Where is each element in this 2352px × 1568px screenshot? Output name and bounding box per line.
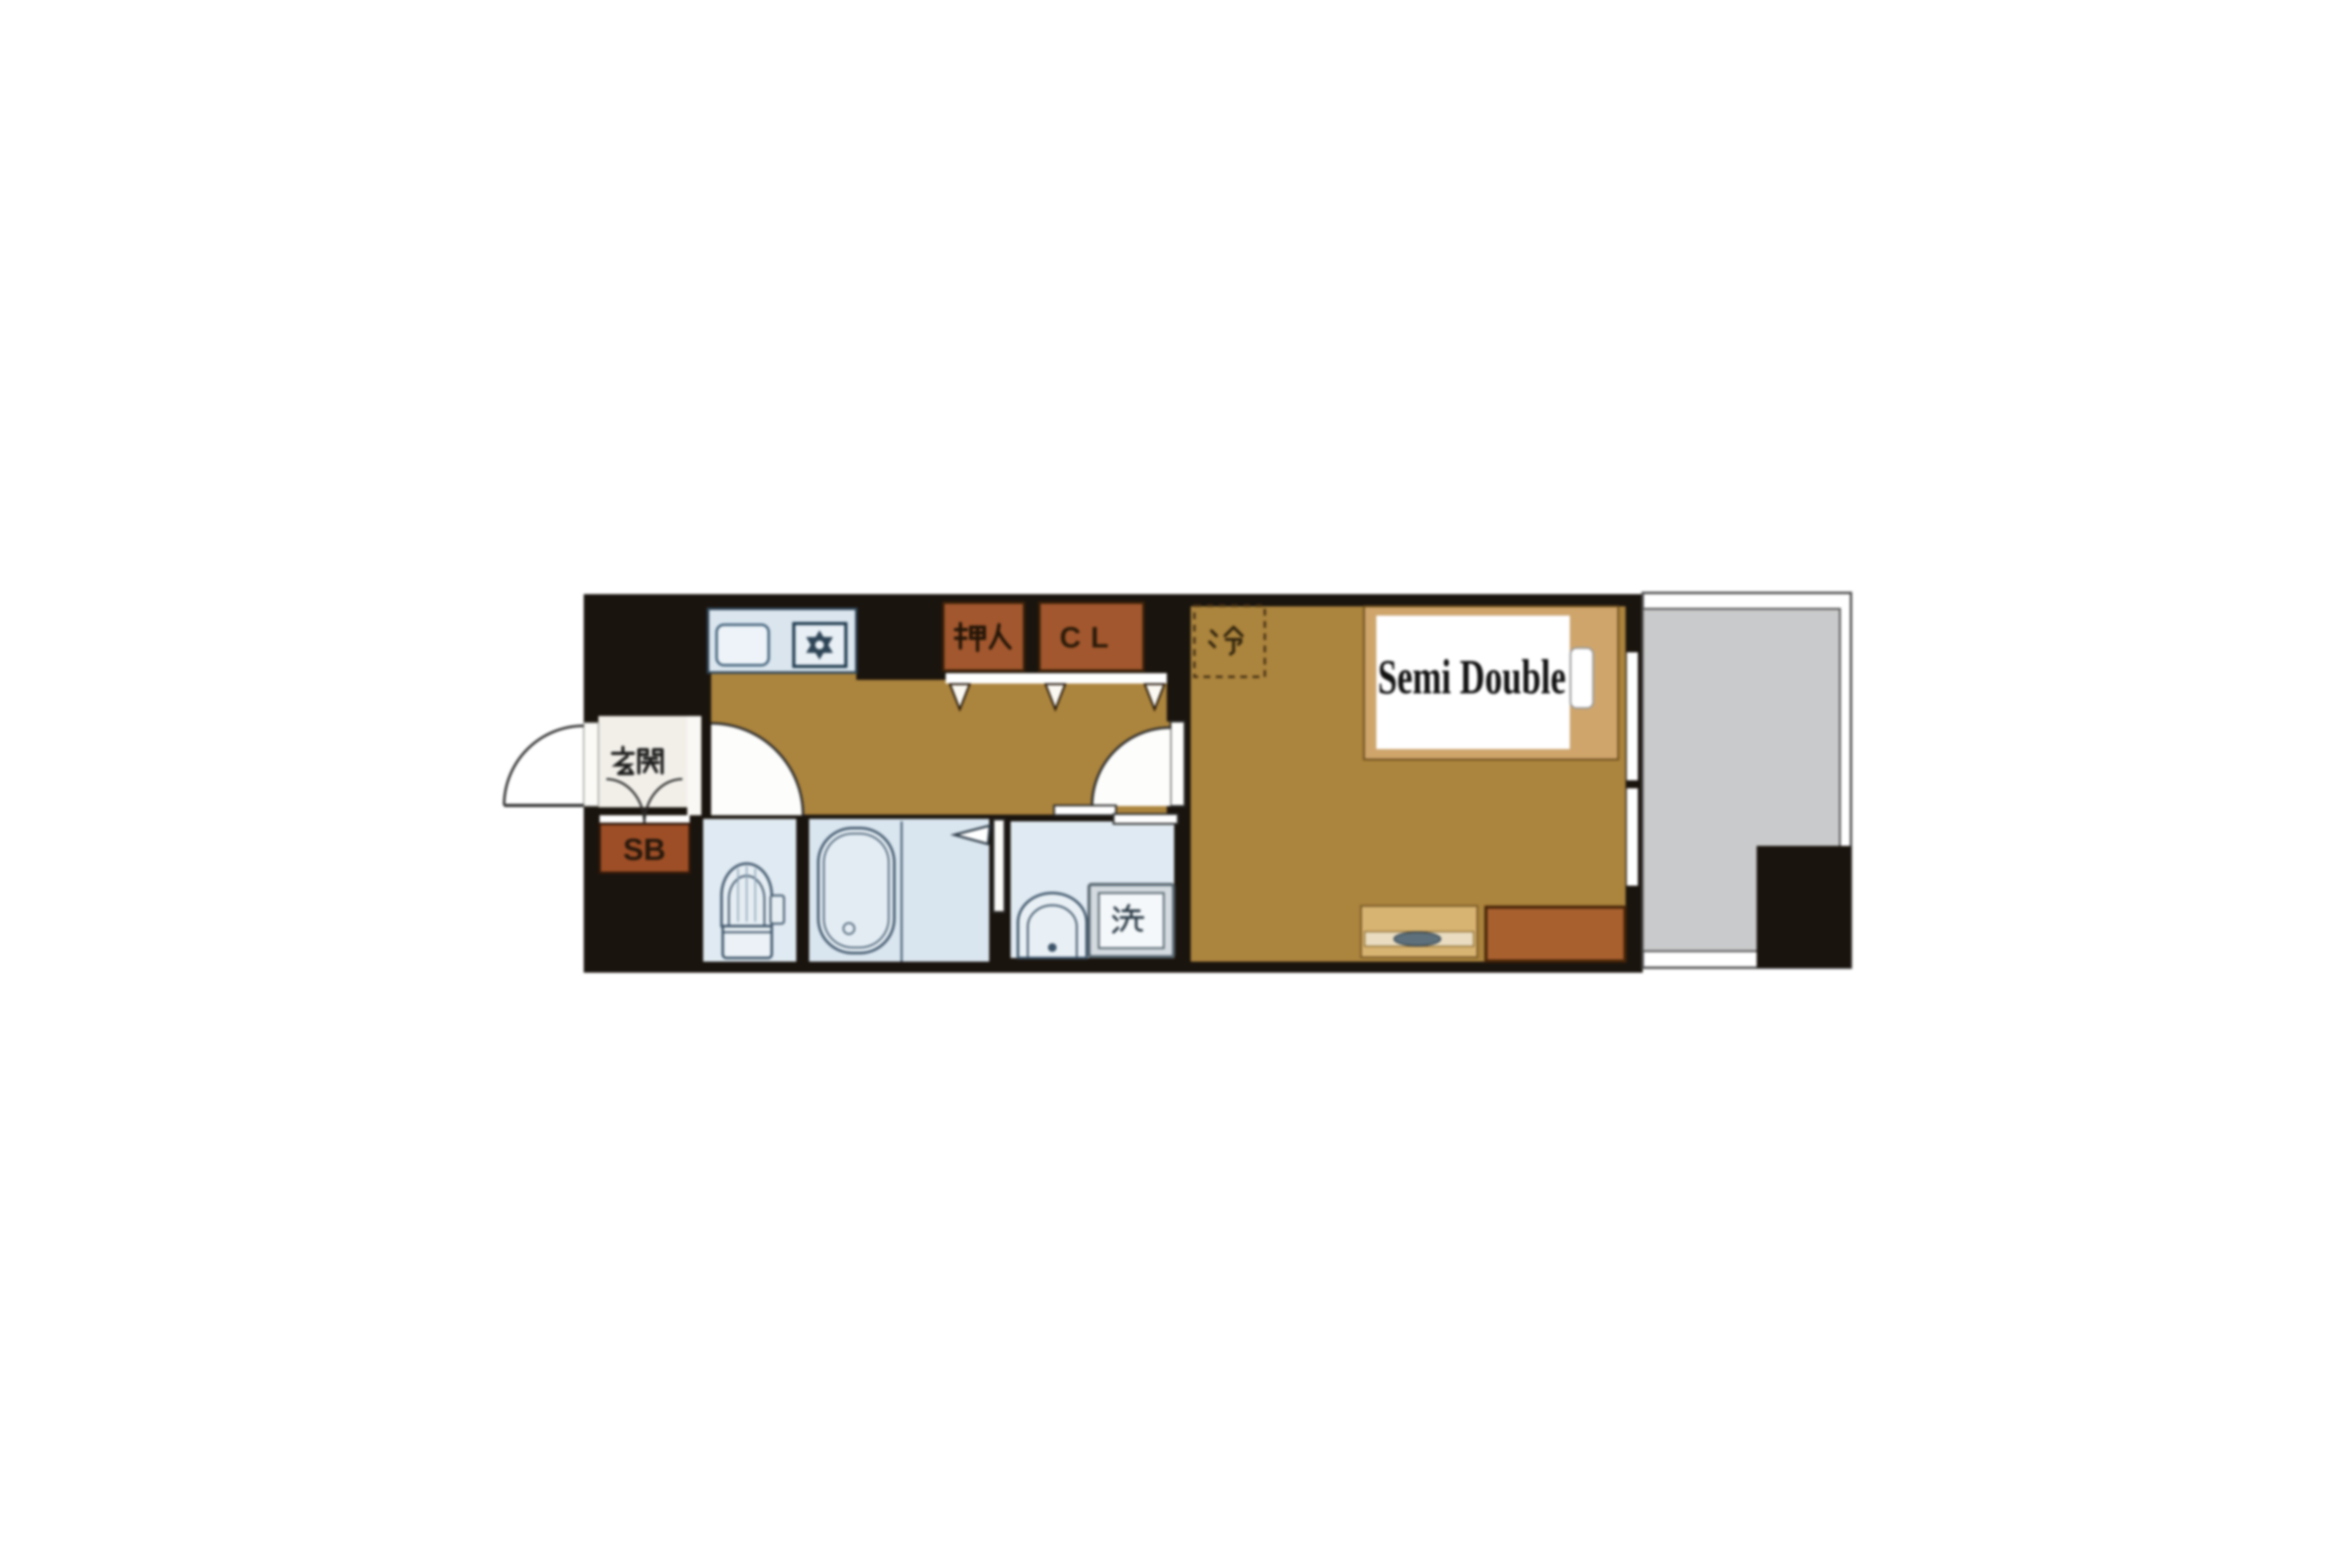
svg-text:SB: SB [623, 832, 665, 867]
svg-text:Semi Double: Semi Double [1378, 650, 1566, 704]
svg-text:CL: CL [1060, 622, 1118, 654]
